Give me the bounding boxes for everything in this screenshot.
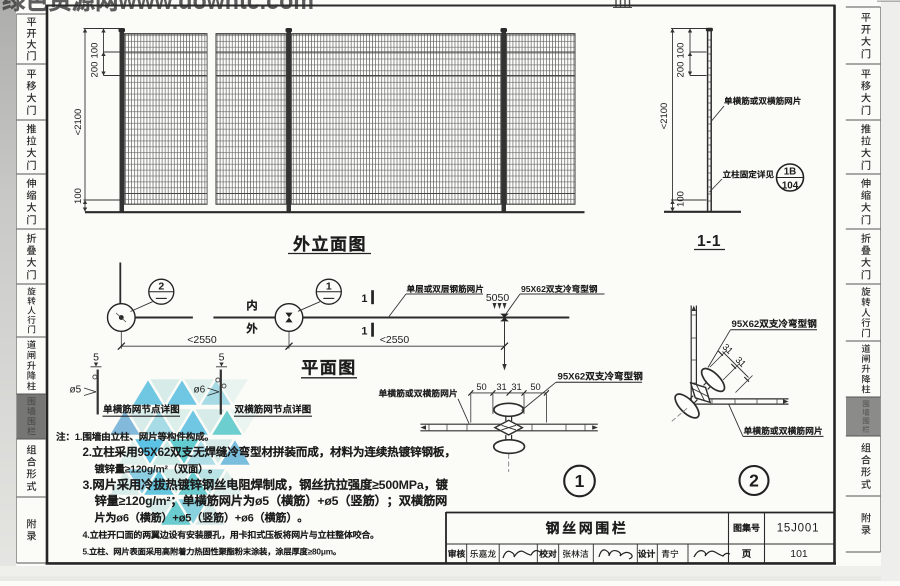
svg-text:栏: 栏 <box>862 424 870 435</box>
svg-text:锌量≥120g/m²；单横筋网片为ø5（横筋）+ø5（竖筋）: 锌量≥120g/m²；单横筋网片为ø5（横筋）+ø5（竖筋）；双横筋网 <box>95 491 448 509</box>
svg-text:单层或双层钢筋网片: 单层或双层钢筋网片 <box>407 283 484 295</box>
svg-text:31: 31 <box>496 379 506 393</box>
svg-text:100: 100 <box>87 43 101 59</box>
svg-text:单横筋或双横筋网片: 单横筋或双横筋网片 <box>724 95 801 107</box>
svg-text:4.立柱开口面的两翼边设有安装腰孔，用卡扣式压板将网片与立柱: 4.立柱开口面的两翼边设有安装腰孔，用卡扣式压板将网片与立柱整体咬合。 <box>83 528 379 541</box>
svg-text:录: 录 <box>26 528 36 543</box>
svg-text:50: 50 <box>530 379 540 393</box>
svg-text:5.立柱、网片表面采用高附着力热固性聚酯粉末涂装，涂层厚度≥: 5.立柱、网片表面采用高附着力热固性聚酯粉末涂装，涂层厚度≥80μm。 <box>83 546 341 558</box>
svg-text:5: 5 <box>219 350 225 365</box>
svg-text:15J001: 15J001 <box>777 520 820 536</box>
svg-text:图集号: 图集号 <box>733 521 760 534</box>
svg-text:门: 门 <box>26 211 36 226</box>
svg-text:门: 门 <box>861 157 871 172</box>
svg-text:注：1.围墙由立柱、网片等构件构成。: 注：1.围墙由立柱、网片等构件构成。 <box>56 429 214 443</box>
svg-text:内: 内 <box>246 298 258 314</box>
svg-text:100: 100 <box>673 43 687 59</box>
svg-text:1-1: 1-1 <box>697 229 721 251</box>
svg-text:1: 1 <box>575 468 585 493</box>
svg-text:柱: 柱 <box>27 379 37 393</box>
svg-text:校对: 校对 <box>538 547 557 560</box>
svg-text:平面图: 平面图 <box>301 354 357 379</box>
svg-text:乐嘉龙: 乐嘉龙 <box>470 547 497 560</box>
svg-text:录: 录 <box>861 522 871 537</box>
svg-text:页: 页 <box>742 546 752 560</box>
svg-text:<2550: <2550 <box>187 332 217 347</box>
svg-text:1B: 1B <box>784 164 797 178</box>
svg-text:门: 门 <box>861 326 870 340</box>
svg-text:1: 1 <box>326 279 332 294</box>
svg-text:式: 式 <box>26 478 36 493</box>
svg-text:31: 31 <box>511 379 521 393</box>
svg-text:2: 2 <box>749 468 759 493</box>
svg-text:<2100: <2100 <box>70 109 84 136</box>
svg-text:钢丝网围栏: 钢丝网围栏 <box>546 518 629 538</box>
svg-text:2.立柱采用95X62双支无焊缝冷弯型材拼装而成，材料为连续: 2.立柱采用95X62双支无焊缝冷弯型材拼装而成，材料为连续热镀锌钢板， <box>83 444 456 460</box>
svg-text:单横筋网节点详图: 单横筋网节点详图 <box>103 402 180 416</box>
svg-text:外立面图: 外立面图 <box>292 230 367 255</box>
svg-text:栏: 栏 <box>27 425 36 438</box>
svg-text:镀锌量≥120g/m²（双面）。: 镀锌量≥120g/m²（双面）。 <box>95 461 219 476</box>
svg-text:门: 门 <box>26 266 36 281</box>
svg-text:2: 2 <box>158 279 164 294</box>
svg-text:门: 门 <box>26 47 36 62</box>
svg-text:1: 1 <box>361 290 367 306</box>
svg-text:101: 101 <box>790 546 808 561</box>
svg-text:ø5: ø5 <box>70 381 82 396</box>
svg-text:片为ø6（横筋）+ø5（竖筋）+ø6（横筋）。: 片为ø6（横筋）+ø5（竖筋）+ø6（横筋）。 <box>94 510 309 526</box>
svg-text:<2100: <2100 <box>656 103 670 130</box>
svg-text:绿色资源网www.dowhtc.com: 绿色资源网www.dowhtc.com <box>2 0 314 17</box>
svg-text:95X62双支冷弯型钢: 95X62双支冷弯型钢 <box>521 283 598 295</box>
svg-text:门: 门 <box>27 324 36 336</box>
svg-text:95X62双支冷弯型钢: 95X62双支冷弯型钢 <box>558 369 644 383</box>
svg-text:门: 门 <box>861 102 871 117</box>
svg-text:设计: 设计 <box>638 547 656 560</box>
svg-text:200: 200 <box>87 62 101 78</box>
svg-text:青宁: 青宁 <box>661 547 679 560</box>
svg-text:104: 104 <box>782 178 799 192</box>
svg-text:单横筋或双横筋网片: 单横筋或双横筋网片 <box>379 387 458 400</box>
svg-text:<2550: <2550 <box>380 332 410 347</box>
svg-text:5: 5 <box>93 350 99 365</box>
svg-text:95X62双支冷弯型钢: 95X62双支冷弯型钢 <box>732 316 818 330</box>
svg-text:张林洁: 张林洁 <box>562 547 589 560</box>
svg-text:门: 门 <box>861 211 871 226</box>
svg-text:双横筋网节点详图: 双横筋网节点详图 <box>234 402 312 416</box>
svg-text:式: 式 <box>861 476 871 491</box>
svg-text:1: 1 <box>361 323 367 339</box>
svg-text:ø6: ø6 <box>194 381 206 396</box>
svg-text:门: 门 <box>861 45 871 60</box>
svg-text:柱: 柱 <box>861 382 870 396</box>
svg-text:200: 200 <box>673 62 687 78</box>
svg-text:门: 门 <box>861 266 871 281</box>
svg-text:门: 门 <box>26 102 36 117</box>
svg-text:单横筋或双横筋网片: 单横筋或双横筋网片 <box>744 424 823 437</box>
svg-text:审核: 审核 <box>448 547 466 560</box>
svg-text:50: 50 <box>476 379 486 393</box>
svg-text:立柱固定详见: 立柱固定详见 <box>723 169 775 181</box>
svg-text:5050: 5050 <box>486 290 510 305</box>
svg-text:门: 门 <box>26 157 36 172</box>
svg-text:100: 100 <box>70 188 84 204</box>
svg-text:外: 外 <box>245 321 258 337</box>
svg-text:100: 100 <box>673 191 687 207</box>
